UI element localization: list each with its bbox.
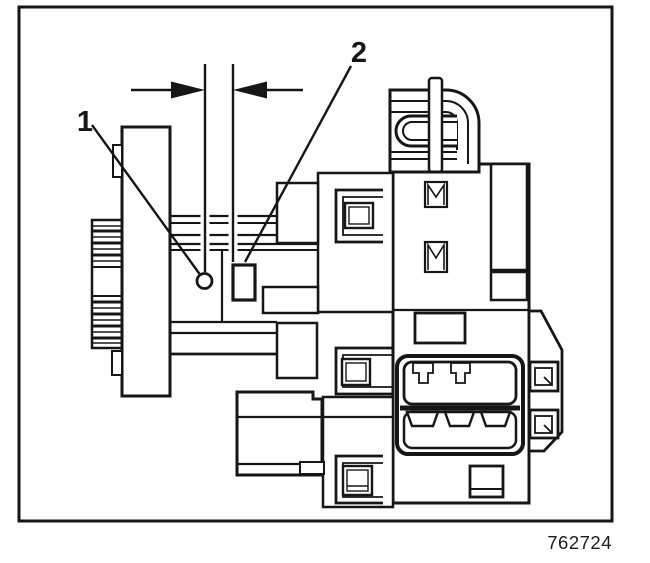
pulley-flange (92, 127, 170, 396)
pickup-loop (396, 116, 457, 146)
terminal-cavity (445, 412, 474, 426)
tower-post (429, 78, 442, 172)
technical-figure: 1 2 762724 (0, 0, 650, 563)
right-latch-strip (529, 311, 562, 451)
arrow-left-icon (233, 82, 267, 99)
arrow-right-icon (171, 82, 205, 99)
side-stub (300, 462, 324, 474)
coil-tower (390, 78, 479, 172)
callout-1-label: 1 (77, 106, 93, 138)
sensor-assembly-drawing (92, 78, 562, 507)
flange-bottom-tab (112, 351, 122, 375)
splined-hub (92, 220, 122, 348)
callout-2-label: 2 (351, 37, 367, 69)
terminal-cavity (407, 412, 438, 426)
callout-1-target-hole (197, 274, 212, 289)
callout-2-target-tab (233, 265, 255, 300)
flange-disc (122, 127, 170, 396)
figure-number: 762724 (547, 532, 612, 553)
terminal-cavity (481, 412, 510, 426)
diagram-canvas: 1 2 762724 (0, 0, 650, 563)
